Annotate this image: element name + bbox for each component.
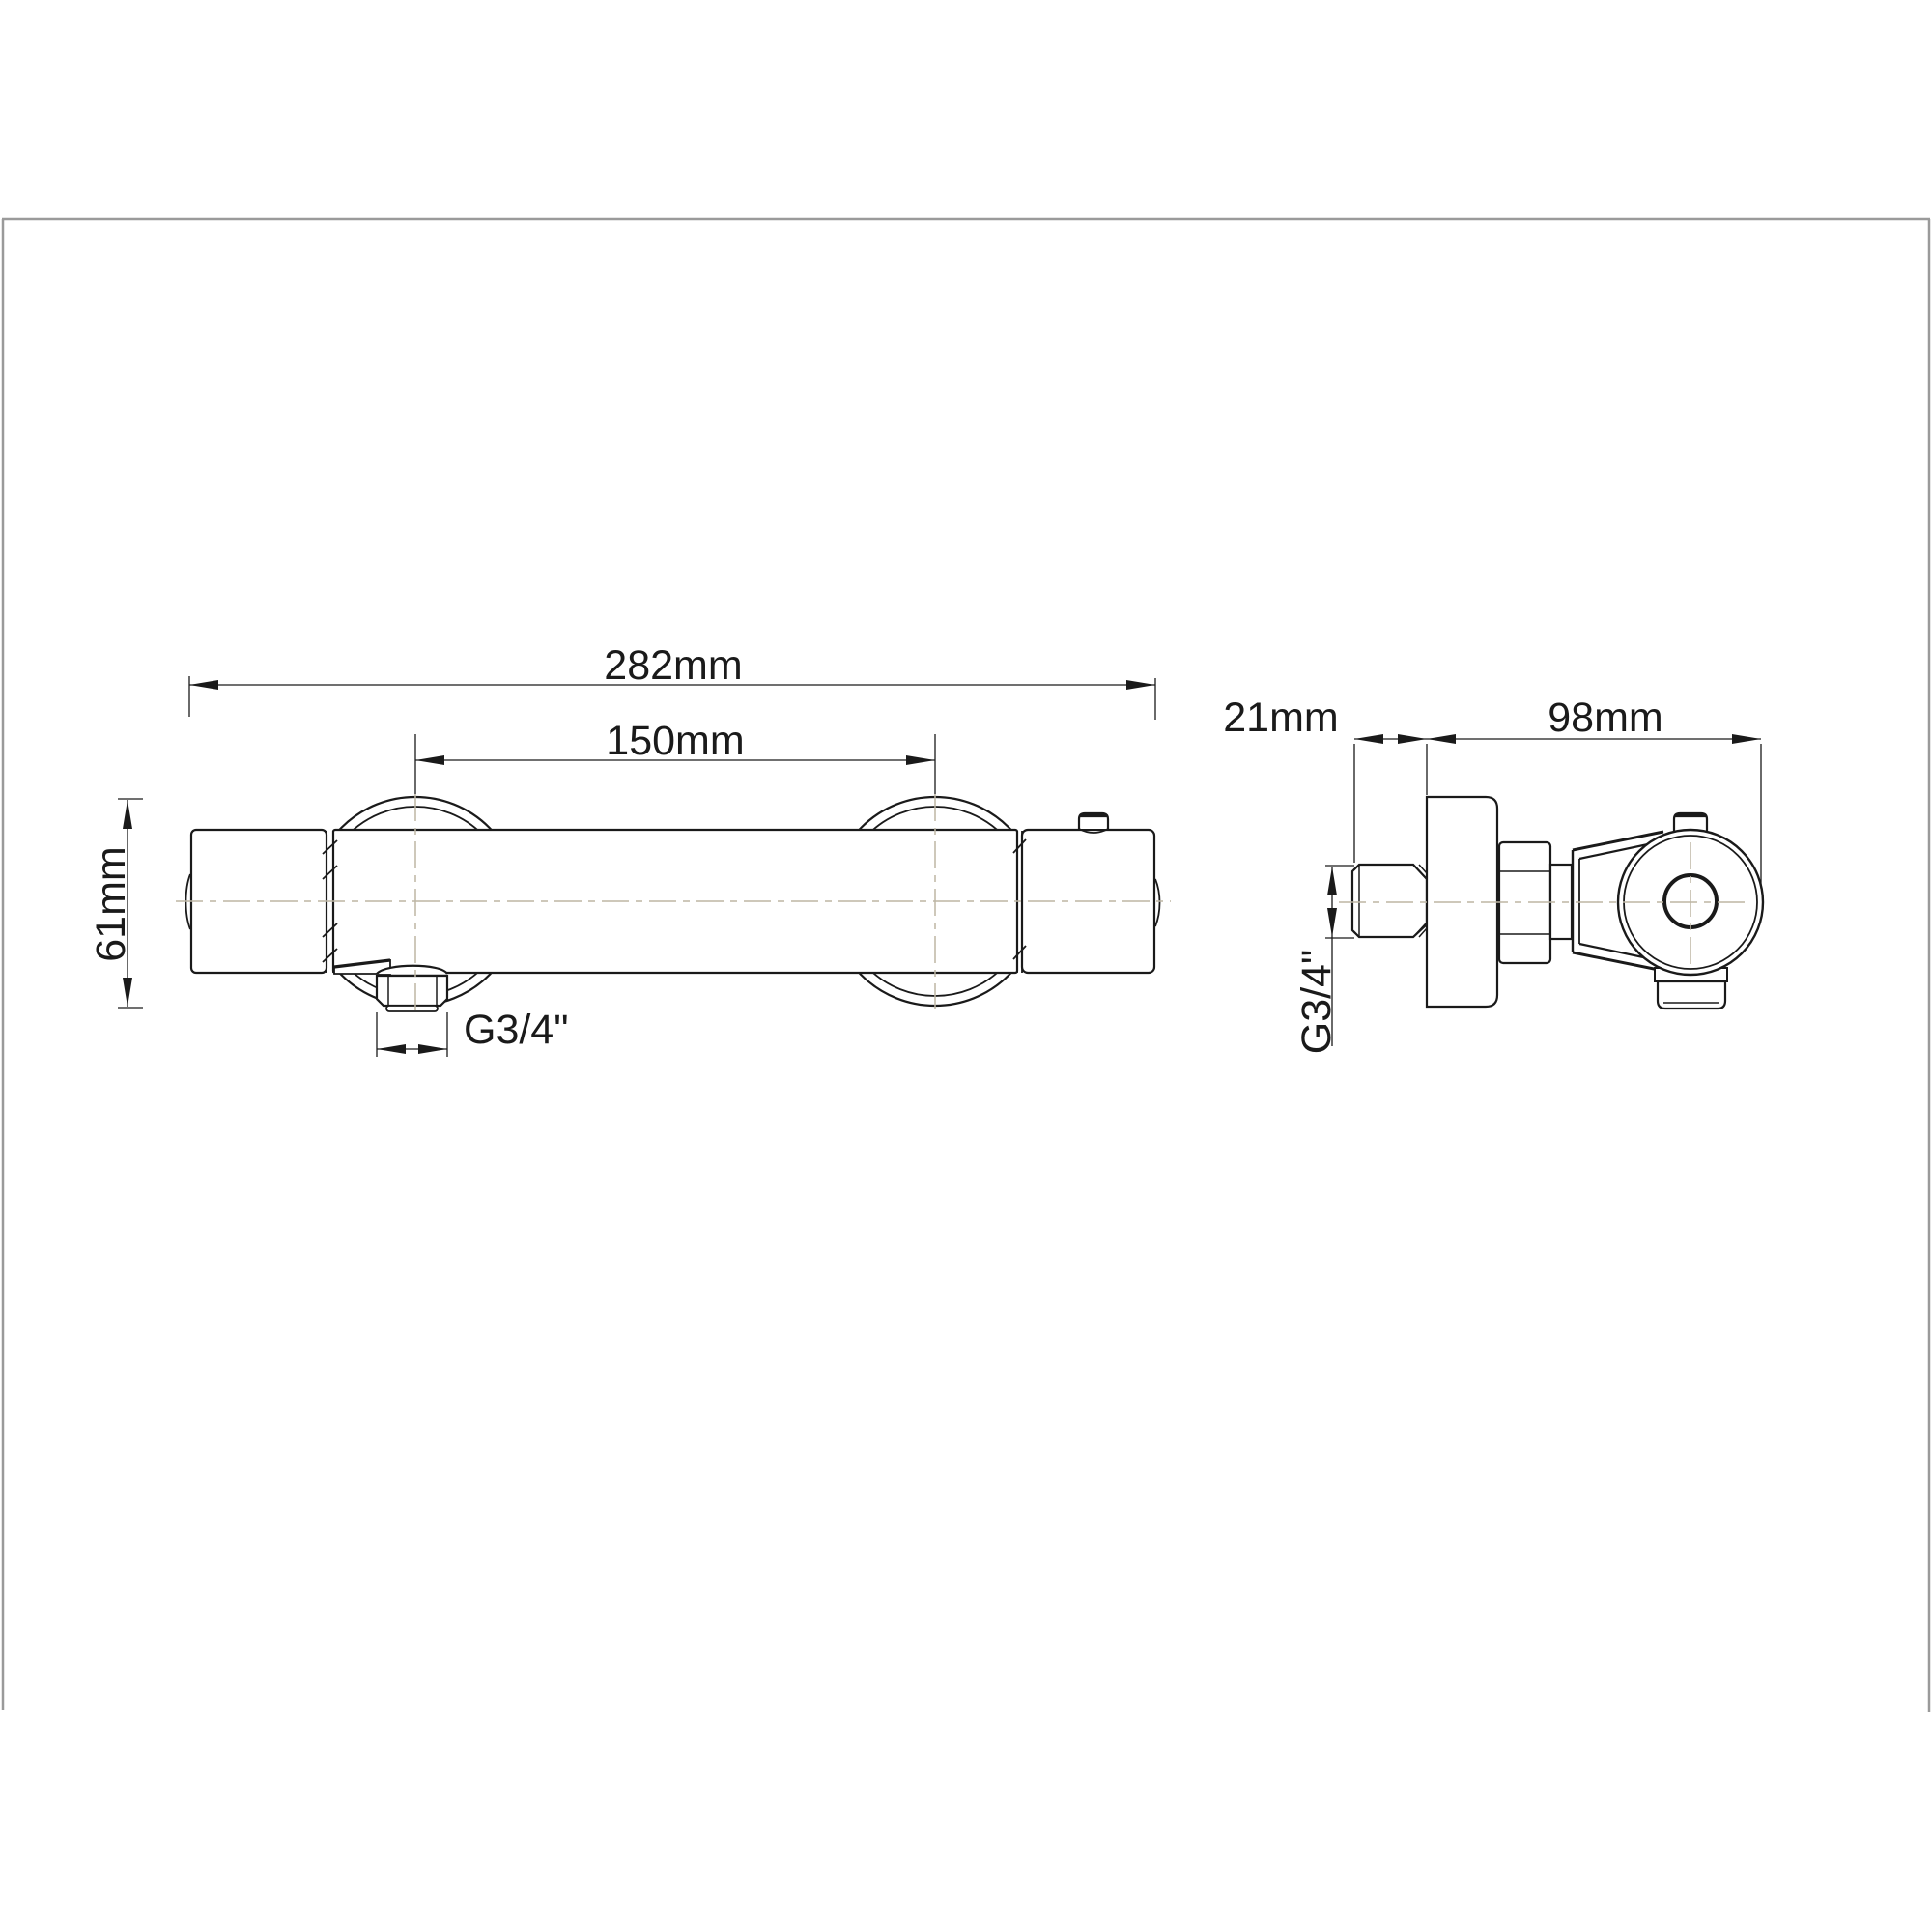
front-outlet	[377, 966, 447, 1011]
shower-valve-dimension-drawing: 282mm 150mm 61mm G3/4"	[0, 0, 1932, 1932]
side-outlet-body	[1655, 981, 1727, 1009]
dim-label-inlet-thread: G3/4"	[1293, 950, 1340, 1055]
dim-label-nipple-length: 21mm	[1223, 695, 1338, 741]
dim-label-depth: 98mm	[1548, 695, 1662, 741]
dim-label-outlet-thread: G3/4"	[464, 1007, 569, 1053]
dim-label-hole-centers: 150mm	[606, 718, 744, 764]
side-view	[1339, 797, 1763, 1009]
technical-drawing-page: 282mm 150mm 61mm G3/4"	[0, 0, 1932, 1932]
front-view	[176, 794, 1171, 1012]
inlet-nipple	[1352, 865, 1427, 937]
dim-label-escutcheon-diameter: 61mm	[88, 846, 134, 961]
dim-label-overall-width: 282mm	[604, 642, 742, 689]
